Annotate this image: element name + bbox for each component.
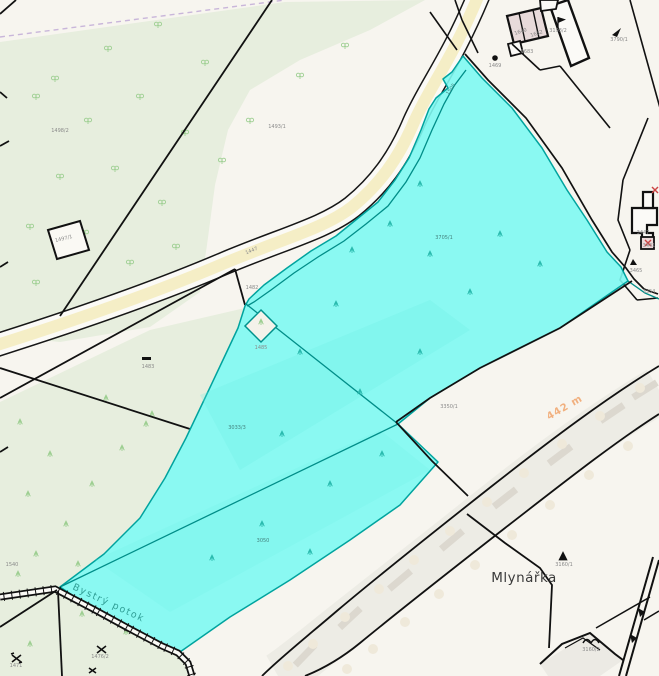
map-viewport[interactable]: 1498/21493/11497/11483144714821485150537… [0,0,659,676]
parcel-number-label: 3160/2 [582,647,600,653]
bar-symbol [142,357,151,360]
parcel-number-label: 3354 [643,289,656,295]
roadside-tree-circle [482,497,492,507]
parcel-number-label: 1485 [255,345,268,351]
roadside-tree-circle [545,500,555,510]
parcel-number-label: 3050 [257,538,270,544]
roadside-tree-circle [342,664,352,674]
roadside-tree-circle [283,661,293,671]
roadside-tree-circle [557,439,567,449]
parcel-number-label: 1471 [10,663,23,669]
parcel-number-label: 3193/2 [549,28,567,34]
parcel-number-label: 3465 [630,268,643,274]
parcel-number-label: 1476/2 [91,654,109,660]
roadside-tree-circle [340,612,350,622]
roadside-tree-circle [368,644,378,654]
roadside-tree-circle [507,530,517,540]
cadastral-map-canvas[interactable]: 1498/21493/11497/11483144714821485150537… [0,0,659,676]
roadside-tree-circle [635,383,645,393]
parcel-number-label: 3441 [643,243,656,249]
parcel-number-label: 1540 [6,562,19,568]
parcel-number-label: 1498/2 [51,128,69,134]
parcel-number-label: 3705/1 [435,235,453,241]
parcel-number-label: 1469 [489,63,502,69]
roadside-tree-circle [434,589,444,599]
roadside-tree-circle [445,526,455,536]
parcel-number-label: 3447 [637,230,650,236]
roadside-tree-circle [584,470,594,480]
parcel-number-label: 3350/1 [440,404,458,410]
roadside-tree-circle [623,441,633,451]
parcel-number-label: 3790/1 [610,37,628,43]
roadside-tree-circle [595,411,605,421]
roadside-tree-circle [519,468,529,478]
parcel-number-label: 1482 [246,285,259,291]
roadside-tree-circle [470,560,480,570]
parcel-number-label: 3033/3 [228,425,246,431]
parcel-number-label: 1483 [142,364,155,370]
parcel-number-label: 3160/1 [555,562,573,568]
roadside-tree-circle [374,584,384,594]
roadside-tree-circle [400,617,410,627]
parcel-number-label: 1493/1 [268,124,286,130]
roadside-tree-circle [308,639,318,649]
parcel-number-label: 1683 [521,49,534,55]
point-symbol-dot [492,55,498,61]
place-name-label: Mlynářka [491,570,557,586]
roadside-tree-circle [409,555,419,565]
